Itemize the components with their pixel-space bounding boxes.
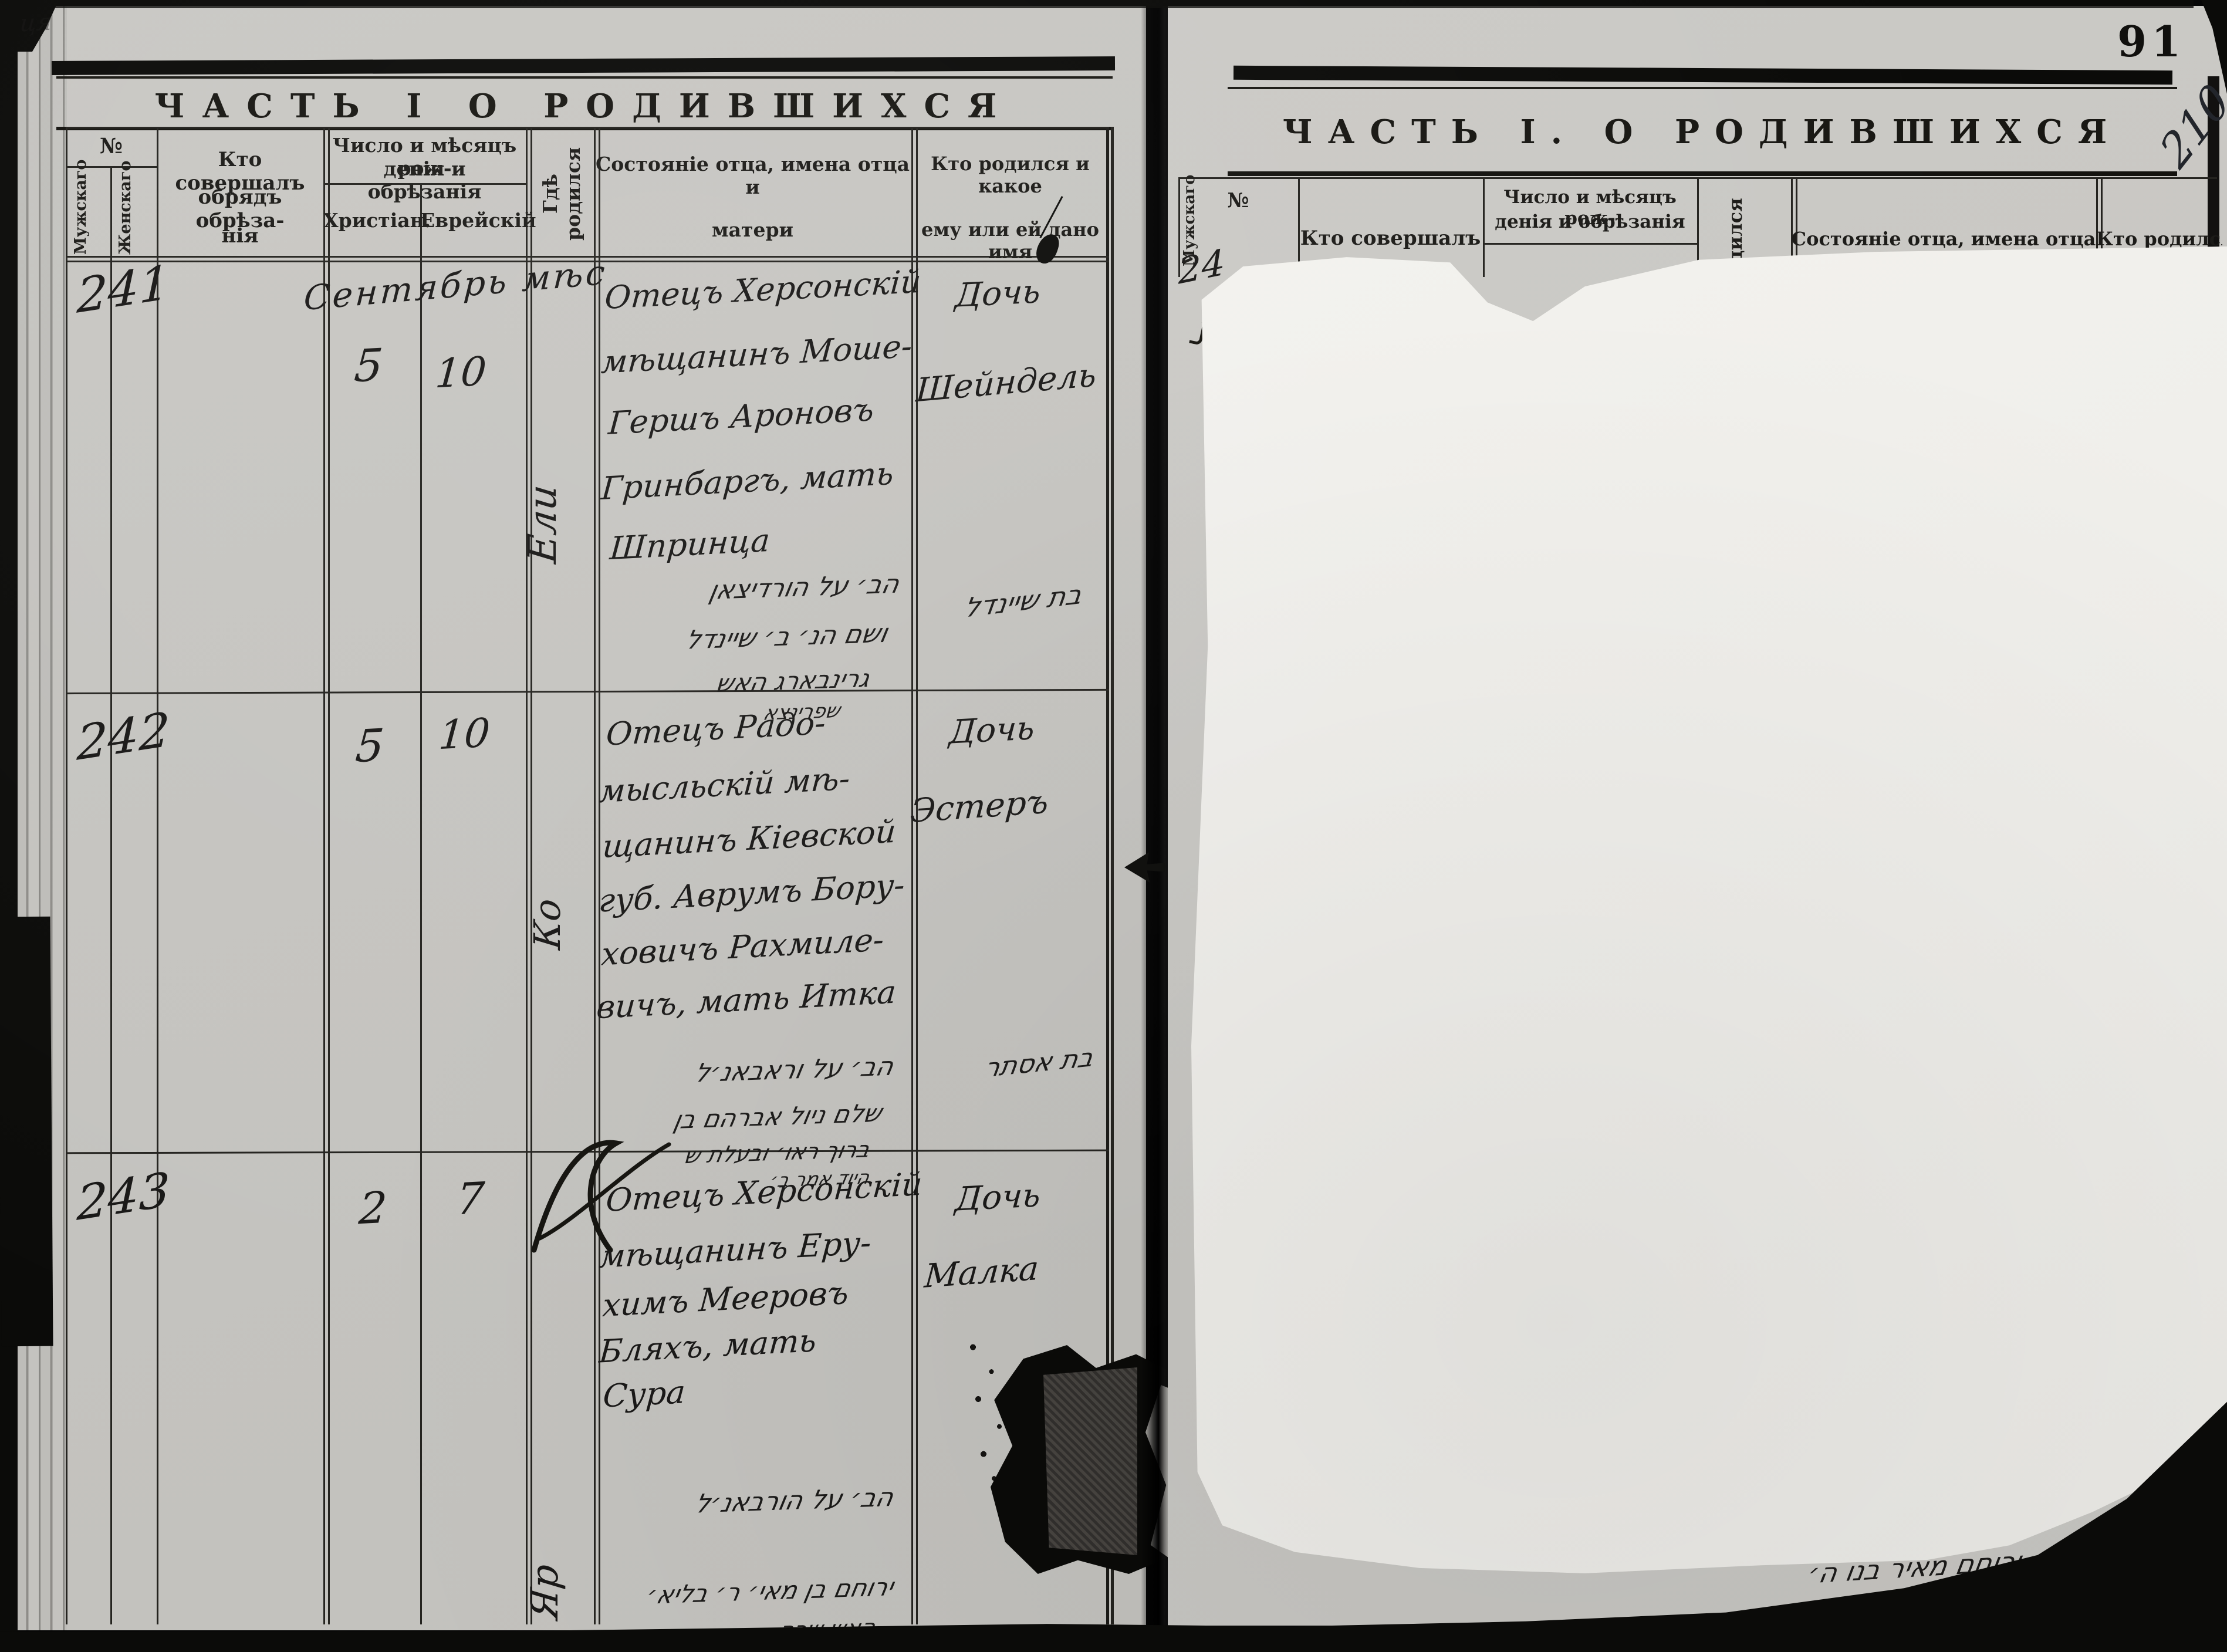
book-gutter bbox=[1141, 6, 1171, 1630]
birthplace-entry: Ели bbox=[520, 314, 576, 566]
col-header-dates: денія и обрѣзанія bbox=[1483, 211, 1697, 232]
corner-scribble: ця bbox=[19, 9, 53, 38]
jewish-day: 7 bbox=[455, 1173, 486, 1225]
right-page-title: ЧАСТЬ I. О РОДИВШИХСЯ bbox=[1228, 113, 2177, 151]
child-info: Малка bbox=[923, 1249, 1040, 1295]
metrical-book-scan: ця ЧАСТЬ I О РОДИВШИХСЯ № Мужскаго Женск… bbox=[0, 0, 2227, 1652]
col-header-child: Кто родился и какое bbox=[911, 153, 1109, 197]
child-info: Дочь bbox=[948, 709, 1036, 751]
left-page-title: ЧАСТЬ I О РОДИВШИХСЯ bbox=[56, 87, 1113, 126]
page-edge-stack bbox=[16, 6, 67, 1630]
left-black-tab bbox=[0, 917, 53, 1347]
left-title-band: ЧАСТЬ I О РОДИВШИХСЯ bbox=[56, 76, 1113, 130]
right-title-band: ЧАСТЬ I. О РОДИВШИХСЯ bbox=[1228, 87, 2177, 176]
film-edge-top bbox=[52, 0, 2194, 8]
christian-day: 5 bbox=[354, 719, 386, 772]
grid-line bbox=[1483, 243, 1697, 245]
child-info: Дочь bbox=[954, 1176, 1042, 1218]
col-header-christian: Христіан. bbox=[323, 209, 420, 232]
birthplace-entry: Ко bbox=[526, 841, 580, 952]
col-header-dates: денія и обрѣзанія bbox=[323, 157, 526, 203]
col-header-male: Мужскаго bbox=[72, 171, 106, 255]
jewish-day: 10 bbox=[437, 710, 492, 759]
birthplace-entry: Яр bbox=[523, 1476, 580, 1623]
col-header-birthplace: Гдѣ родился bbox=[539, 133, 581, 255]
christian-day: 5 bbox=[353, 339, 385, 392]
grid-line bbox=[66, 127, 67, 1624]
col-header-female: Женскаго bbox=[116, 171, 151, 255]
film-edge-left bbox=[0, 0, 18, 1652]
col-header-child: ему или ей дано имя bbox=[911, 218, 1109, 263]
folio-number: 91 bbox=[2117, 16, 2185, 66]
jewish-day: 10 bbox=[434, 349, 488, 397]
col-header-jewish: Еврейскій bbox=[420, 209, 526, 232]
col-header-father: матери bbox=[594, 218, 911, 241]
grid-line bbox=[66, 127, 1109, 129]
grid-line bbox=[110, 166, 112, 1624]
col-header-child: Кто родился и какое bbox=[2096, 228, 2222, 250]
grid-line bbox=[157, 127, 158, 1624]
grid-line bbox=[323, 127, 325, 1624]
christian-day: 2 bbox=[357, 1183, 388, 1234]
col-header-officiant: Кто совершалъ bbox=[1298, 227, 1483, 250]
overlay-blank-sheet bbox=[1191, 246, 2227, 1579]
col-header-no: № bbox=[66, 134, 157, 158]
grid-line bbox=[594, 127, 596, 1624]
child-info: Дочь bbox=[954, 272, 1042, 315]
col-header-father: Состояніе отца, имена отца и bbox=[594, 153, 911, 198]
grid-line bbox=[420, 183, 422, 1624]
binding-cloth bbox=[1043, 1367, 1137, 1555]
father-info: Сура bbox=[601, 1373, 687, 1414]
col-header-officiant: нія bbox=[157, 224, 323, 248]
